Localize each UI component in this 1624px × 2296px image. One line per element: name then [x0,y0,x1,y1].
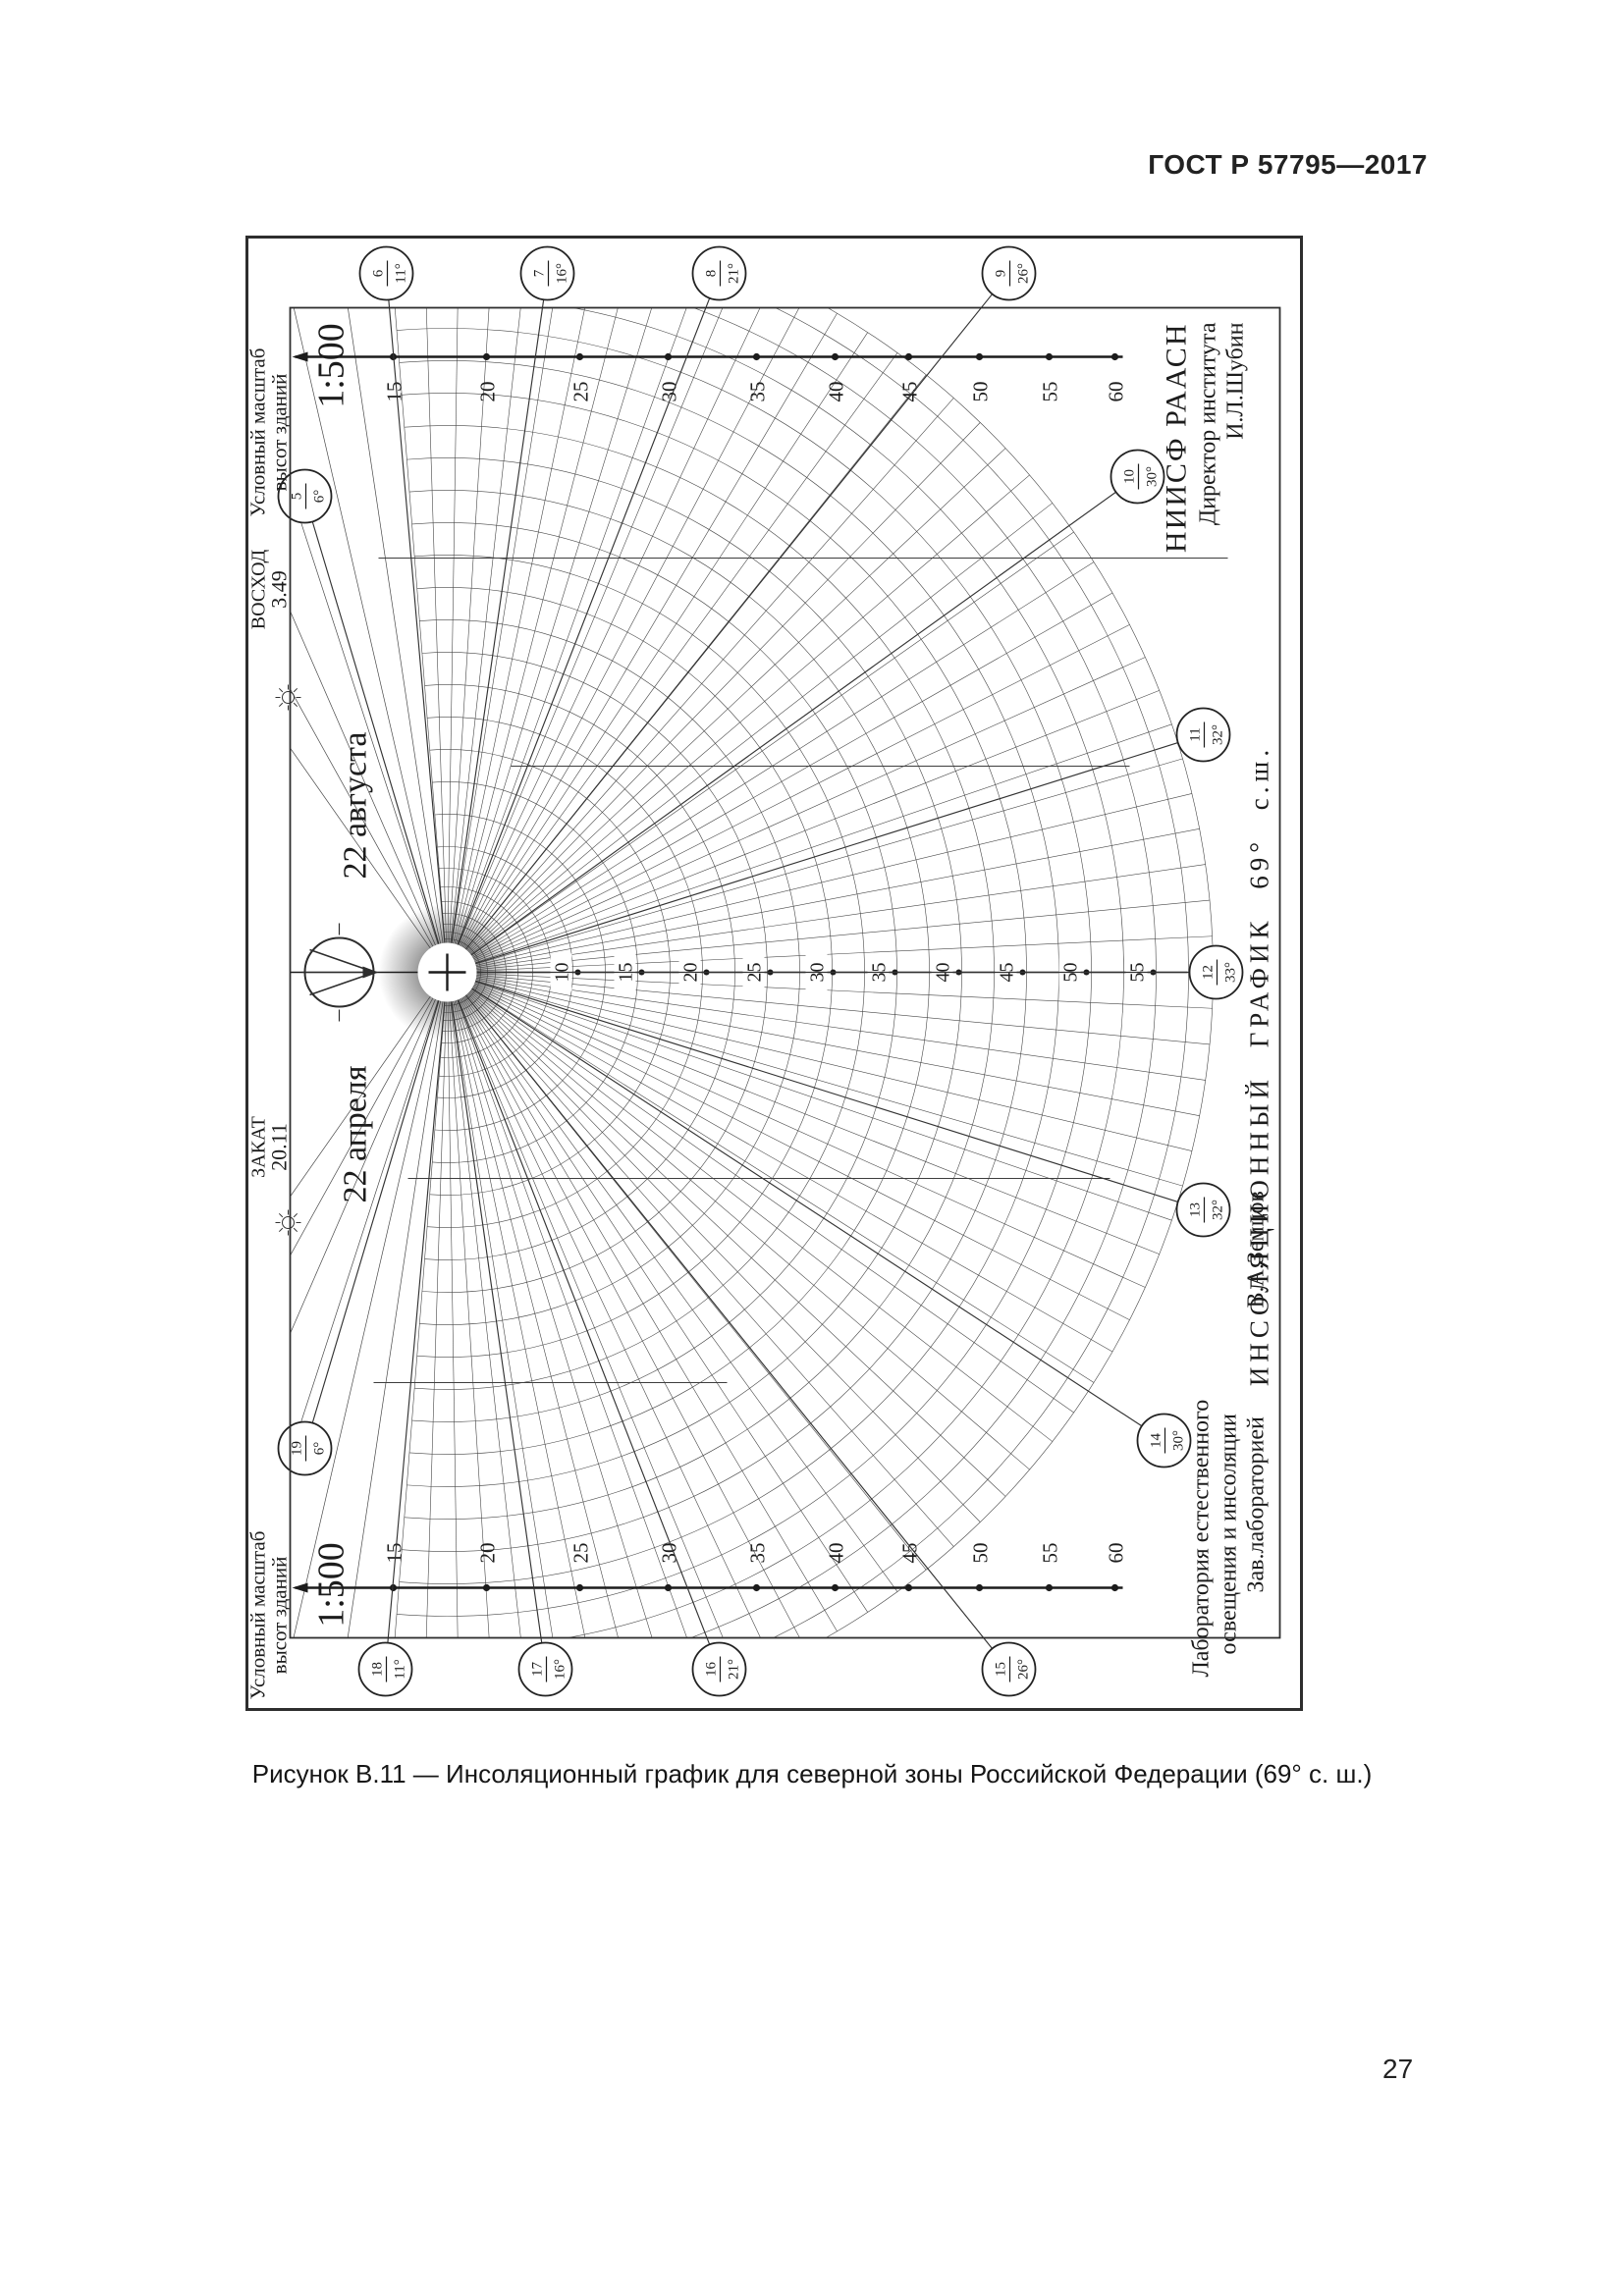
hour-mark-circle: 1132° [1176,708,1229,761]
svg-text:14: 14 [1148,1432,1164,1448]
svg-text:6°: 6° [311,489,327,503]
svg-text:20: 20 [475,381,499,401]
svg-text:освещения и инсоляции: освещения и инсоляции [1216,1413,1241,1654]
svg-text:30°: 30° [1144,466,1160,487]
hour-mark-circle: 1621° [692,1642,745,1695]
svg-text:55: 55 [1038,381,1061,401]
svg-text:НИИСФ РААСН: НИИСФ РААСН [1160,322,1192,553]
svg-text:32°: 32° [1210,1200,1225,1220]
svg-text:50: 50 [968,1542,992,1563]
svg-text:20.11: 20.11 [266,1123,291,1171]
svg-text:И.Л.Шубин: И.Л.Шубин [1222,322,1248,440]
svg-text:32°: 32° [1210,724,1225,745]
svg-text:высот зданий: высот зданий [267,1556,291,1674]
svg-text:7: 7 [531,269,547,277]
svg-text:15: 15 [993,1662,1008,1677]
svg-text:25: 25 [568,381,592,401]
hour-mark-circle: 196° [278,1421,331,1474]
hour-mark-circle: 1716° [518,1642,571,1695]
svg-text:21°: 21° [726,263,741,284]
svg-text:11: 11 [1187,727,1203,741]
svg-text:30°: 30° [1170,1430,1186,1451]
hour-mark-circle: 1233° [1189,945,1242,998]
hour-mark-circle: 1332° [1176,1183,1229,1236]
svg-text:30: 30 [657,381,680,401]
svg-text:11°: 11° [393,263,408,283]
figure-caption: Рисунок В.11 — Инсоляционный график для … [0,1759,1624,1789]
svg-text:33°: 33° [1222,962,1238,983]
hour-mark-circle: 1811° [358,1642,411,1695]
svg-text:15: 15 [382,1542,406,1563]
hour-mark-circle: 1430° [1137,1414,1190,1467]
svg-text:35: 35 [745,381,769,401]
svg-text:Лаборатория естественного: Лаборатория естественного [1188,1399,1214,1677]
hour-mark-circle: 821° [692,246,745,299]
svg-text:21°: 21° [726,1659,741,1680]
svg-text:16°: 16° [552,1659,568,1680]
page-number: 27 [1382,2054,1413,2085]
hour-mark-circle: 611° [359,246,412,299]
svg-text:45: 45 [897,381,921,401]
hour-mark-circle: 926° [982,246,1035,299]
svg-text:25: 25 [568,1542,592,1563]
svg-text:17: 17 [529,1661,545,1677]
document-page: ГОСТ Р 57795—2017 1520253035404550556015… [0,0,1624,2296]
svg-text:12: 12 [1200,965,1216,980]
svg-text:Условный масштаб: Условный масштаб [248,1530,269,1699]
svg-text:6: 6 [370,269,386,277]
svg-text:16: 16 [703,1661,719,1677]
date-august: 22 августа [337,731,373,879]
svg-text:60: 60 [1104,381,1127,401]
svg-text:Условный масштаб: Условный масштаб [248,347,269,516]
north-arrow-icon [301,923,378,1021]
svg-text:1:500: 1:500 [310,1542,352,1628]
svg-text:Директор института: Директор института [1195,322,1220,525]
svg-text:3.49: 3.49 [266,570,291,609]
svg-text:26°: 26° [1015,1659,1031,1680]
svg-text:10: 10 [1121,469,1137,484]
svg-text:50: 50 [968,381,992,401]
svg-text:60: 60 [1104,1542,1127,1563]
svg-text:35: 35 [745,1542,769,1563]
svg-text:20: 20 [475,1542,499,1563]
svg-text:Зав.лабораторией: Зав.лабораторией [1243,1415,1269,1592]
date-april: 22 апреля [337,1065,373,1202]
hour-mark-circle: 716° [520,246,573,299]
figure-frame: 1520253035404550556015202530354045505560… [245,236,1303,1711]
svg-text:40: 40 [824,1542,847,1563]
svg-text:15: 15 [382,381,406,401]
hour-mark-circle: 1030° [1110,450,1164,503]
svg-text:18: 18 [369,1662,385,1677]
svg-text:9: 9 [993,269,1008,277]
svg-text:26°: 26° [1015,263,1031,284]
svg-text:1:500: 1:500 [310,323,352,408]
svg-text:40: 40 [824,381,847,401]
sunrise-sun-icon [275,684,300,710]
svg-text:16°: 16° [554,263,569,284]
svg-text:13: 13 [1187,1202,1203,1217]
insolation-chart-canvas: 1520253035404550556015202530354045505560… [248,239,1300,1708]
svg-text:8: 8 [703,269,719,277]
svg-text:В.А.Земцов: В.А.Земцов [1243,1191,1269,1308]
hour-mark-circle: 1526° [982,1642,1035,1695]
svg-text:6°: 6° [311,1441,327,1455]
sunset-sun-icon [275,1209,300,1235]
svg-text:11°: 11° [392,1659,407,1679]
svg-text:55: 55 [1038,1542,1061,1563]
document-header: ГОСТ Р 57795—2017 [1148,149,1428,181]
height-ruler-left: 15202530354045505560 [292,1542,1127,1592]
insolation-chart: 1520253035404550556015202530354045505560… [248,239,1300,1708]
svg-text:высот зданий: высот зданий [267,373,291,491]
